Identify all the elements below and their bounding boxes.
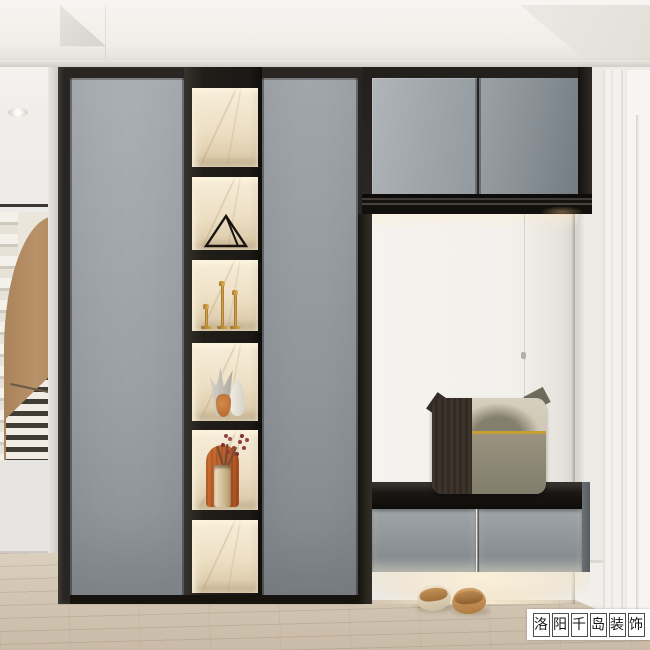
candlestick-base <box>217 326 228 329</box>
upper-cabinet-door-right <box>479 78 578 194</box>
vase-white <box>230 380 245 416</box>
slipper-band <box>419 586 449 603</box>
niche-2-marble <box>192 177 258 250</box>
candlestick-base <box>230 326 241 329</box>
cylinder-vase <box>214 465 231 507</box>
watermark: 洛 阳 千 岛 装 饰 <box>527 609 650 640</box>
niche-1-marble <box>192 88 258 167</box>
watermark-char: 洛 <box>533 613 550 637</box>
candlestick-cup <box>219 281 225 286</box>
door-panel-molding <box>636 115 639 615</box>
candlestick-medium <box>234 294 237 327</box>
door-casing <box>603 70 625 645</box>
ceiling-downlight <box>8 108 28 117</box>
ceiling-recess-edge <box>105 5 106 58</box>
wardrobe-base-trim <box>70 595 362 604</box>
pillow-dark-panel <box>432 398 472 494</box>
pillow-olive-panel <box>472 434 546 494</box>
upper-cabinet-door-left <box>372 78 477 194</box>
niche-5-marble <box>192 430 258 510</box>
candlestick-cup <box>203 304 209 309</box>
bench-drawer-left <box>372 509 476 572</box>
bench-drawer-seam <box>477 509 479 572</box>
watermark-char: 千 <box>571 613 588 637</box>
wardrobe-door-right <box>262 78 358 595</box>
watermark-char: 装 <box>609 613 626 637</box>
candlestick-cup <box>232 290 238 295</box>
bench-drawer-right <box>478 509 582 572</box>
triangle-ornament <box>200 214 252 248</box>
upper-cabinet-side-panel <box>578 67 592 214</box>
watermark-char: 岛 <box>590 613 607 637</box>
bench-side-panel <box>582 482 590 572</box>
red-blossoms <box>226 450 230 454</box>
candlestick-tall <box>221 285 224 327</box>
slipper-band <box>454 590 483 605</box>
niche-4-marble <box>192 343 258 421</box>
niche-6-marble <box>192 520 258 593</box>
vase-orange <box>216 394 231 417</box>
niche-3-marble <box>192 260 258 331</box>
ceiling-shadow <box>0 58 650 67</box>
candlestick-base <box>201 326 212 329</box>
concealed-door-knob <box>521 352 526 359</box>
wardrobe-door-left <box>70 78 184 595</box>
wardrobe-side-panel <box>358 214 372 604</box>
entryway-interior-photo: 洛 阳 千 岛 装 饰 <box>0 0 650 650</box>
upper-cabinet-led-glow <box>540 206 584 218</box>
candlestick-small <box>205 308 208 327</box>
watermark-char: 饰 <box>628 613 645 637</box>
pillow <box>432 398 546 494</box>
wall-corner-band <box>48 67 58 604</box>
watermark-char: 阳 <box>552 613 569 637</box>
pillow-beige-panel <box>472 398 546 431</box>
